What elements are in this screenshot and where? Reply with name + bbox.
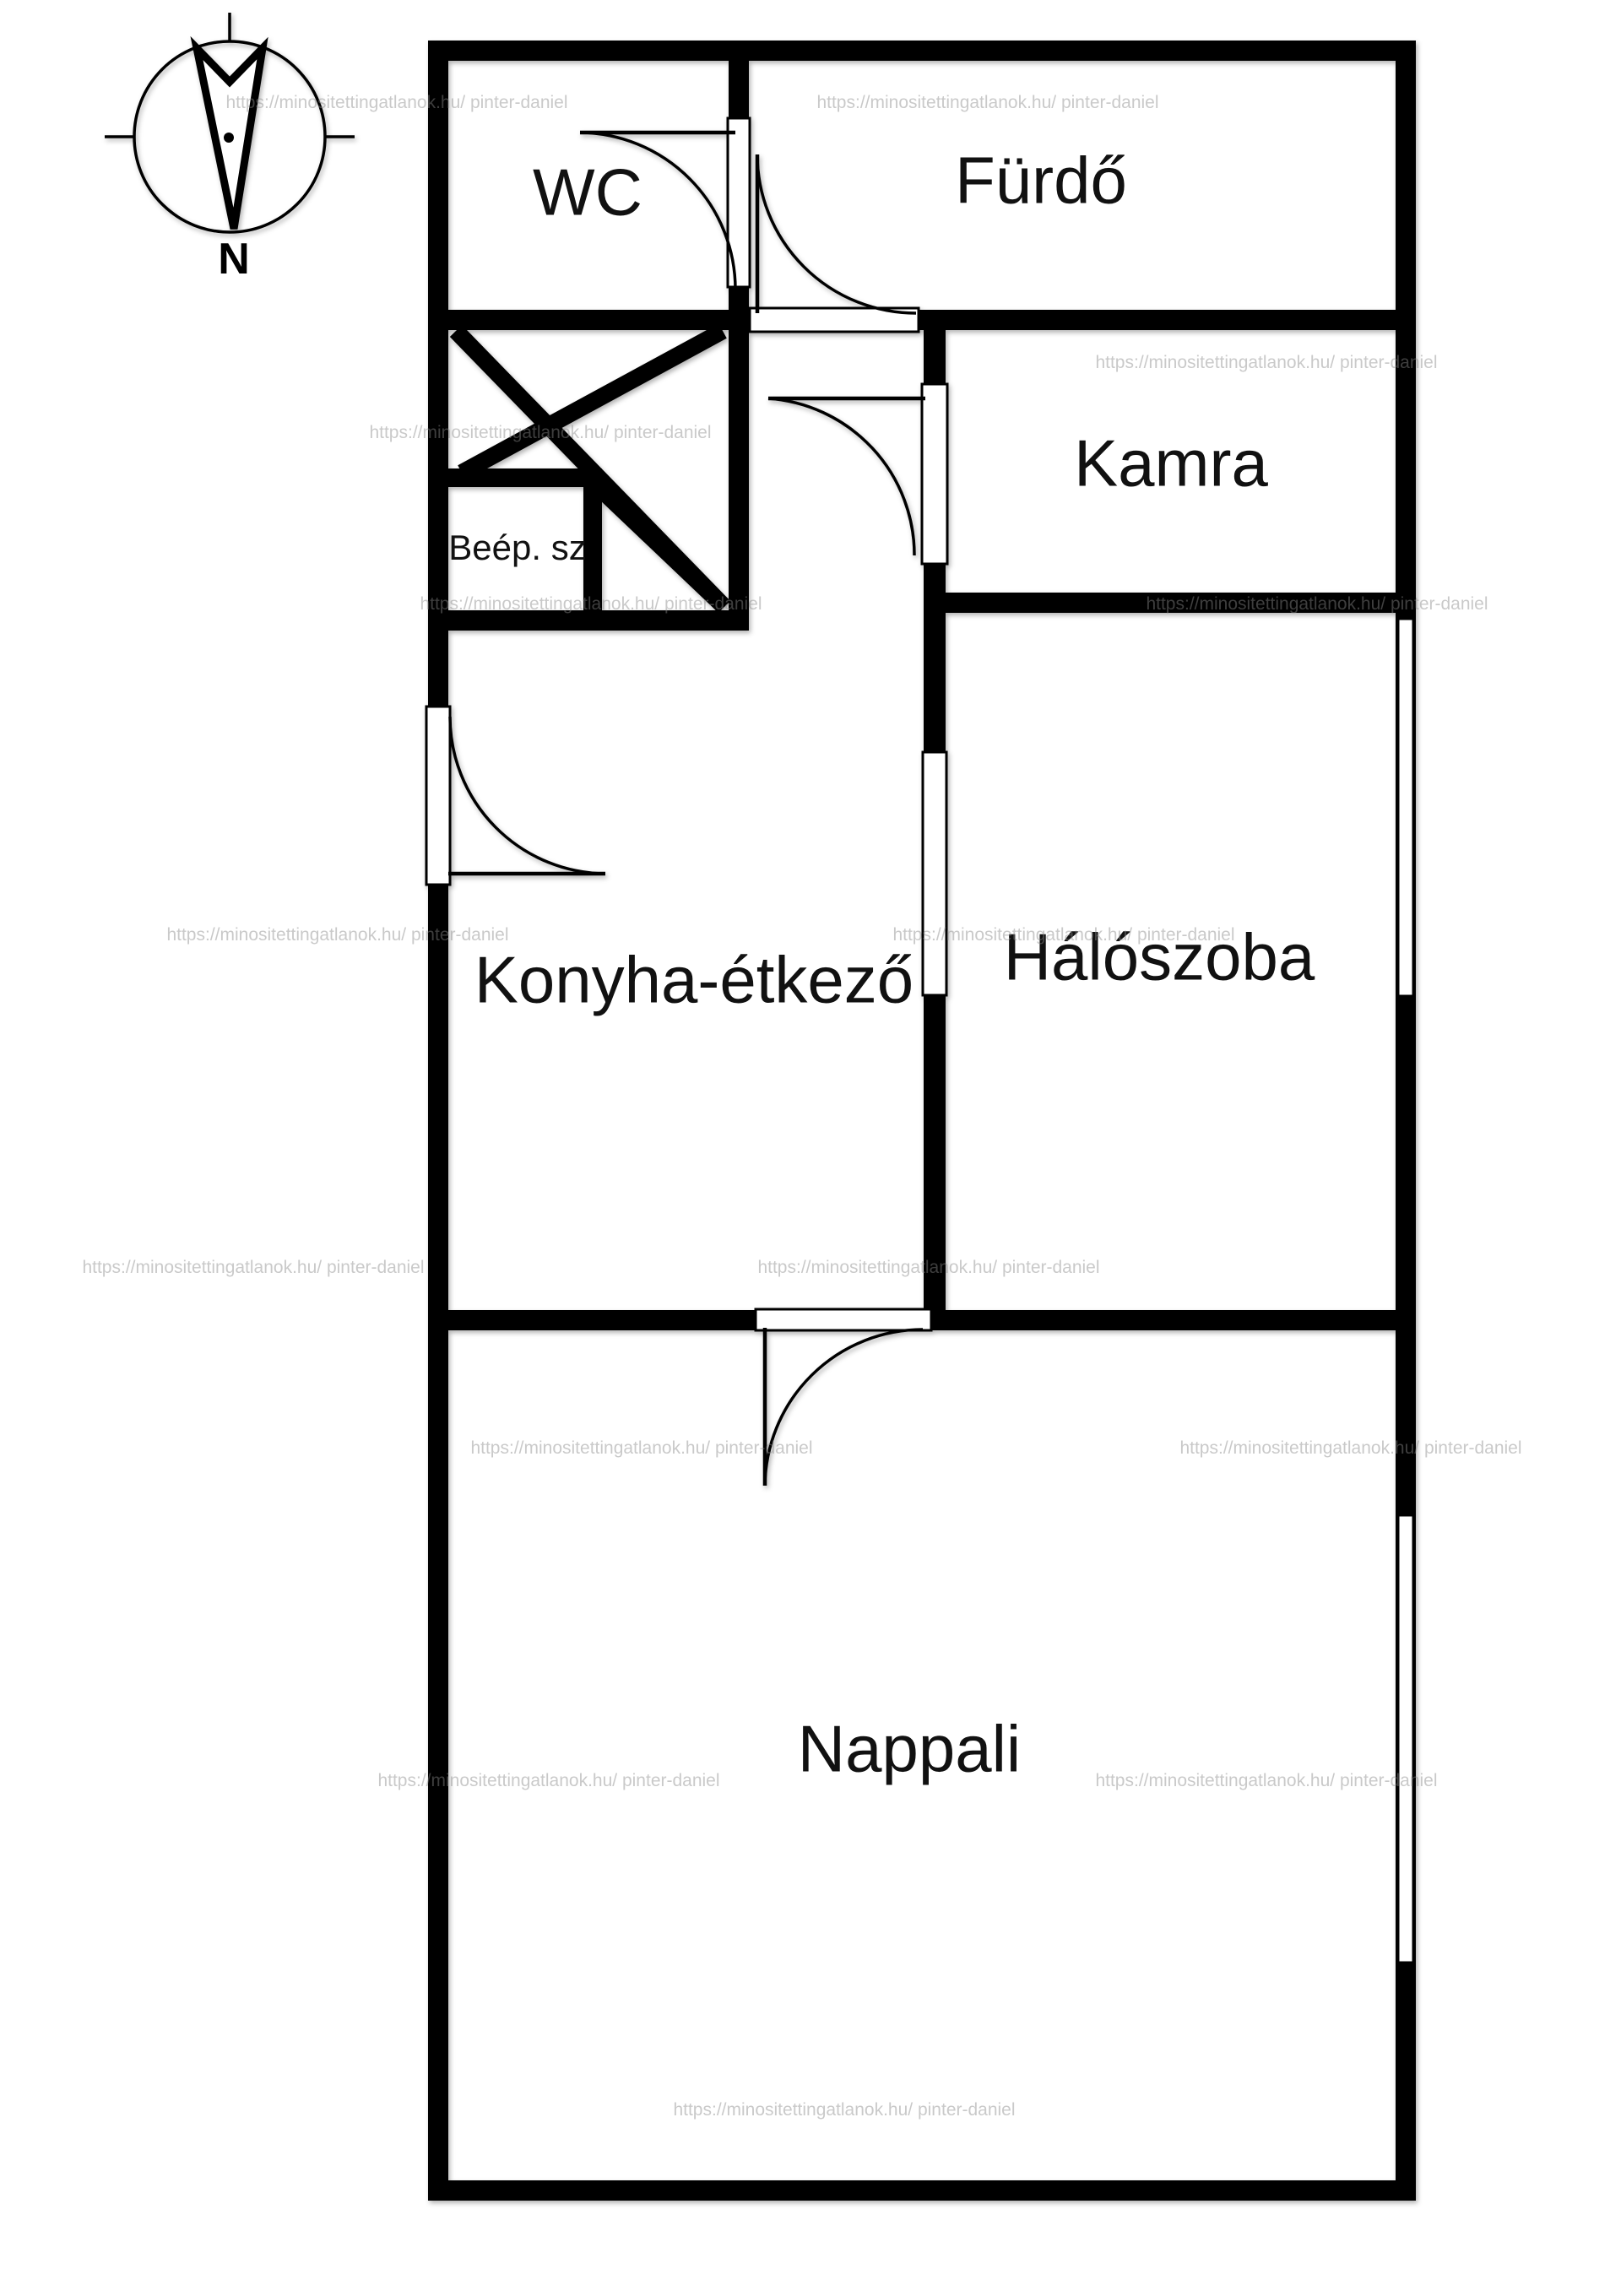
watermark-text: https://minositettingatlanok.hu/ pinter-… bbox=[1146, 594, 1488, 615]
room-label-furdo: Fürdő bbox=[955, 143, 1127, 219]
compass-north-arrow bbox=[105, 13, 355, 232]
entry-door-opening bbox=[426, 707, 450, 885]
watermark-text: https://minositettingatlanok.hu/ pinter-… bbox=[82, 1258, 424, 1278]
entry-door bbox=[426, 707, 605, 885]
wall-outer-left bbox=[428, 41, 448, 2201]
haloszoba-interior-window bbox=[923, 752, 946, 995]
nappali-window bbox=[1398, 1515, 1413, 1963]
watermark-text: https://minositettingatlanok.hu/ pinter-… bbox=[470, 1438, 812, 1459]
wc-door-opening bbox=[728, 118, 750, 287]
watermark-text: https://minositettingatlanok.hu/ pinter-… bbox=[166, 925, 508, 945]
compass-north-label: N bbox=[218, 234, 250, 284]
wall-nappali-right bbox=[931, 1310, 1416, 1330]
watermark-text: https://minositettingatlanok.hu/ pinter-… bbox=[420, 594, 762, 615]
nappali-door-opening bbox=[756, 1309, 931, 1330]
watermark-text: https://minositettingatlanok.hu/ pinter-… bbox=[1095, 1771, 1437, 1791]
compass-center-dot bbox=[224, 133, 234, 143]
wall-outer-bottom bbox=[428, 2180, 1416, 2201]
room-label-beep-sz: Beép. sz bbox=[448, 528, 586, 568]
furdo-door bbox=[750, 154, 919, 332]
entry-door-arc bbox=[450, 717, 605, 874]
watermark-text: https://minositettingatlanok.hu/ pinter-… bbox=[377, 1771, 719, 1791]
furdo-door-arc bbox=[757, 154, 916, 313]
room-label-nappali: Nappali bbox=[798, 1711, 1022, 1788]
watermark-text: https://minositettingatlanok.hu/ pinter-… bbox=[816, 93, 1158, 113]
room-label-kamra: Kamra bbox=[1074, 425, 1268, 502]
wall-h1-left bbox=[428, 310, 750, 330]
room-label-konyha-etkezo: Konyha-étkező bbox=[474, 942, 914, 1019]
room-label-wc: WC bbox=[533, 154, 642, 231]
watermark-text: https://minositettingatlanok.hu/ pinter-… bbox=[673, 2100, 1015, 2120]
kamra-door bbox=[768, 384, 947, 564]
kamra-door-arc bbox=[768, 398, 914, 555]
floor-plan-drawing bbox=[0, 0, 1621, 2296]
watermark-text: https://minositettingatlanok.hu/ pinter-… bbox=[1179, 1438, 1521, 1459]
nappali-door-arc bbox=[765, 1329, 923, 1486]
wall-nappali-left bbox=[428, 1310, 756, 1330]
watermark-text: https://minositettingatlanok.hu/ pinter-… bbox=[225, 93, 567, 113]
wall-outer-top bbox=[428, 41, 1416, 61]
haloszoba-window bbox=[1398, 619, 1413, 996]
watermark-text: https://minositettingatlanok.hu/ pinter-… bbox=[757, 1258, 1099, 1278]
kamra-door-opening bbox=[922, 384, 947, 564]
wall-h1-right bbox=[919, 310, 1416, 330]
nappali-door bbox=[756, 1309, 931, 1486]
floor-plan-page: N WC Fürdő Kamra Beép. sz Konyha-étkező … bbox=[0, 0, 1621, 2296]
watermark-text: https://minositettingatlanok.hu/ pinter-… bbox=[892, 925, 1234, 945]
watermark-text: https://minositettingatlanok.hu/ pinter-… bbox=[369, 423, 711, 443]
watermark-text: https://minositettingatlanok.hu/ pinter-… bbox=[1095, 353, 1437, 373]
